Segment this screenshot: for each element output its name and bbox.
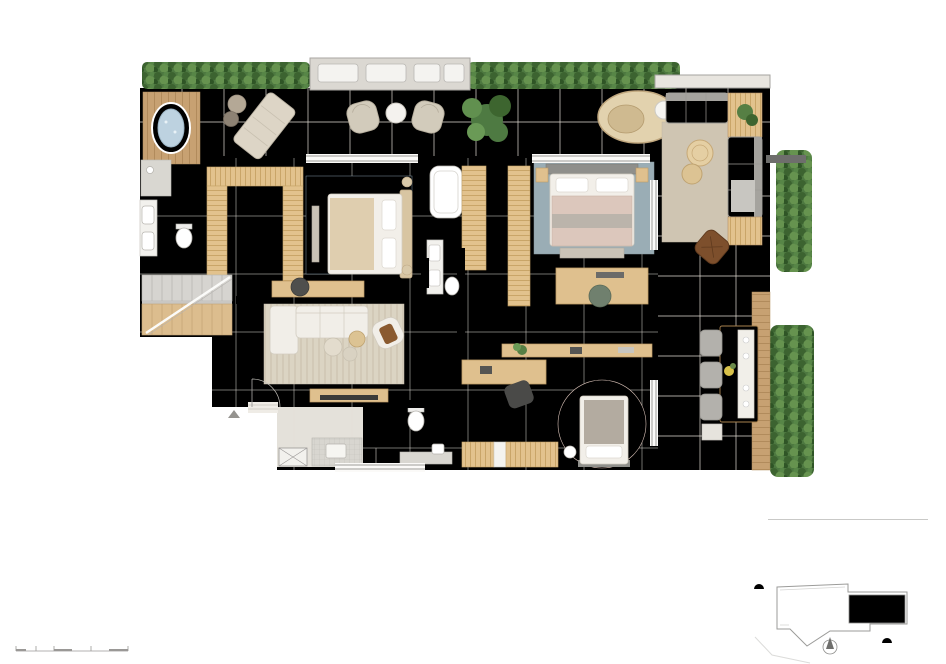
sink [326, 444, 346, 458]
tv [320, 395, 378, 400]
coffee-table [682, 164, 702, 184]
coffee-table [687, 140, 713, 166]
pouf [324, 338, 342, 356]
entry-marker [228, 410, 240, 418]
dining-chair [700, 330, 722, 356]
sideboard [272, 281, 364, 297]
toilet [176, 228, 192, 248]
scale-bar [0, 636, 170, 664]
key-plan [750, 575, 946, 664]
desk-chair [589, 285, 611, 307]
chaise [270, 306, 298, 354]
pouf [224, 112, 239, 127]
dining-chair [700, 394, 722, 420]
sun-icon [752, 582, 766, 589]
scale-bar-graphic [0, 636, 170, 664]
pouf [228, 95, 246, 113]
desk [462, 360, 546, 384]
terrace-parapet [655, 75, 770, 88]
terrace-lounge [662, 93, 762, 267]
shower [400, 452, 452, 464]
pouf [343, 347, 357, 361]
toilet [445, 277, 459, 295]
compass-icon [823, 637, 837, 654]
roof-bench [310, 58, 470, 90]
desk-chair [291, 278, 309, 296]
toilet [408, 411, 424, 431]
wall-stub [766, 155, 806, 163]
sun-icon [880, 636, 894, 643]
side-table [386, 103, 406, 123]
floor-plan-drawing [0, 0, 946, 500]
dining-chair [700, 362, 722, 388]
coffee-table [349, 331, 365, 347]
floor-plan-page [0, 0, 946, 664]
divider [768, 519, 928, 520]
unit-01-highlight [849, 595, 905, 623]
apartment-info [748, 512, 946, 529]
sink [432, 444, 444, 454]
staircase [142, 275, 232, 335]
